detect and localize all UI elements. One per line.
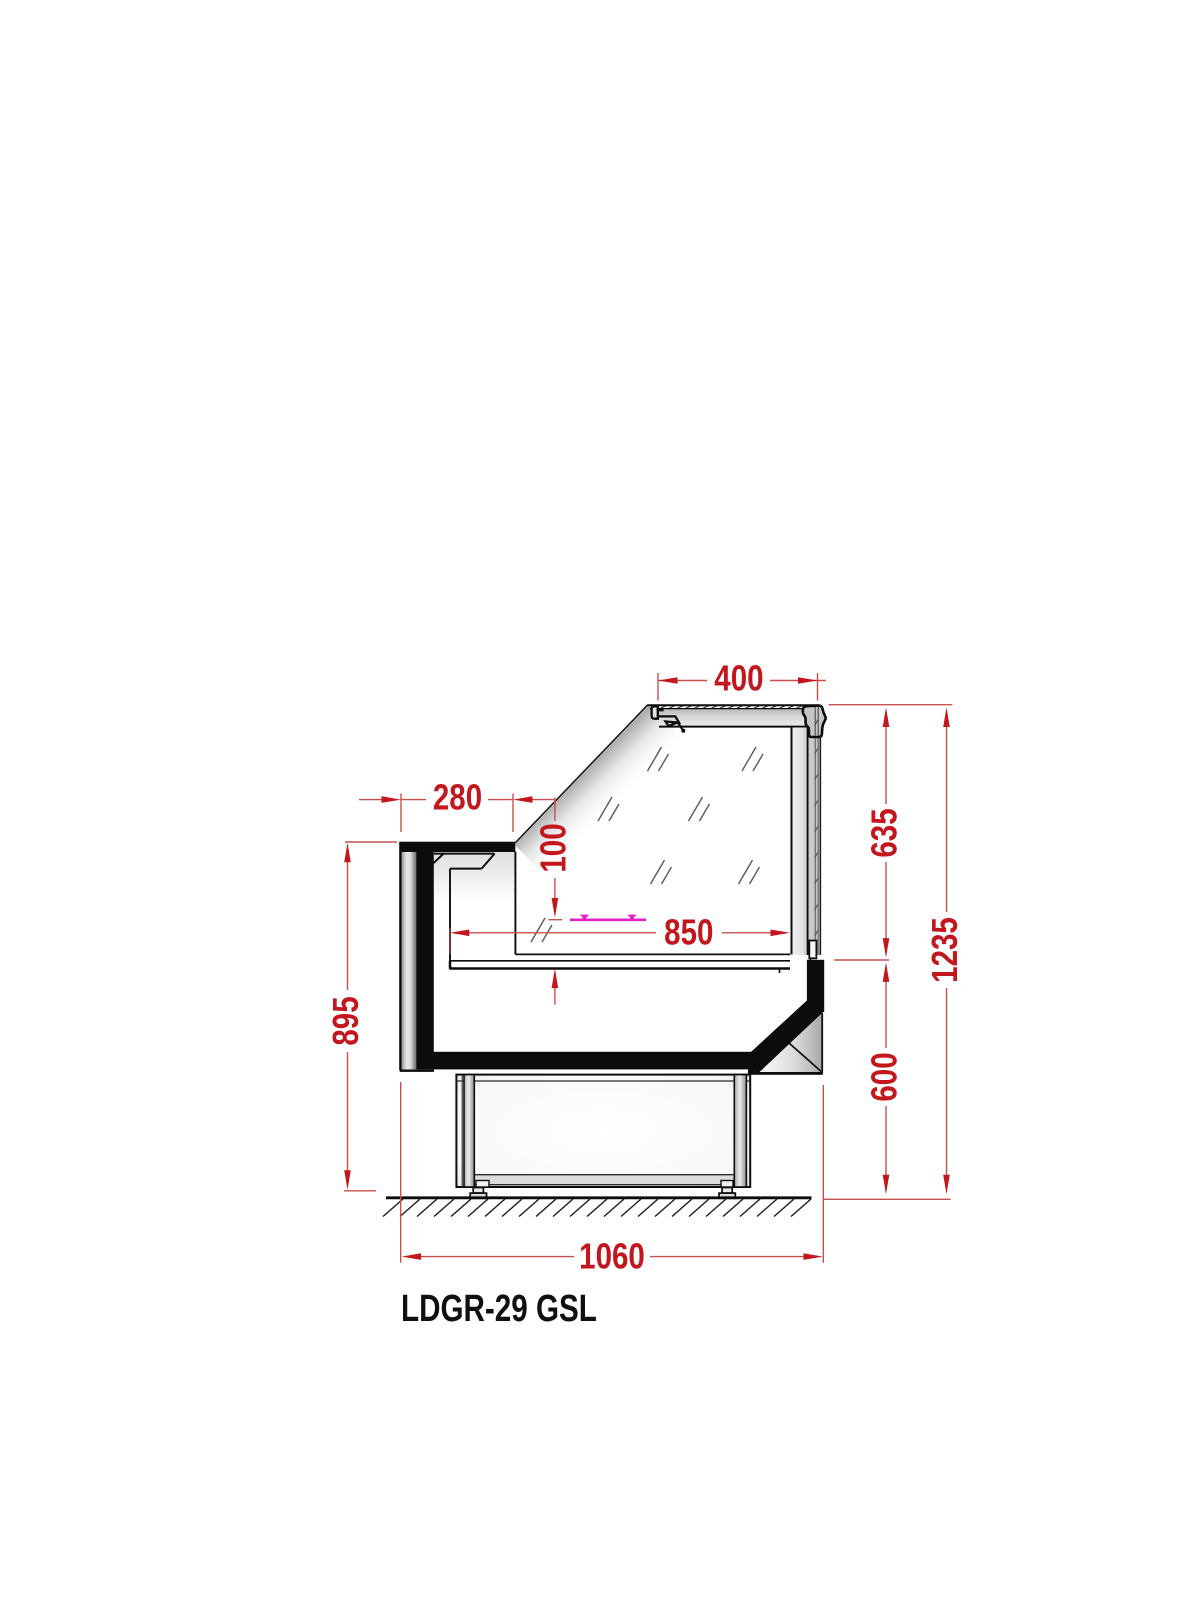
svg-text:400: 400 bbox=[714, 658, 763, 698]
svg-text:895: 895 bbox=[325, 996, 365, 1045]
svg-text:1235: 1235 bbox=[924, 917, 964, 983]
svg-text:LDGR-29 GSL: LDGR-29 GSL bbox=[401, 1288, 597, 1330]
svg-text:635: 635 bbox=[864, 808, 904, 857]
svg-text:1060: 1060 bbox=[579, 1236, 645, 1276]
svg-text:600: 600 bbox=[864, 1052, 904, 1101]
svg-text:280: 280 bbox=[433, 777, 482, 817]
svg-text:850: 850 bbox=[664, 912, 713, 952]
svg-text:100: 100 bbox=[532, 823, 572, 872]
